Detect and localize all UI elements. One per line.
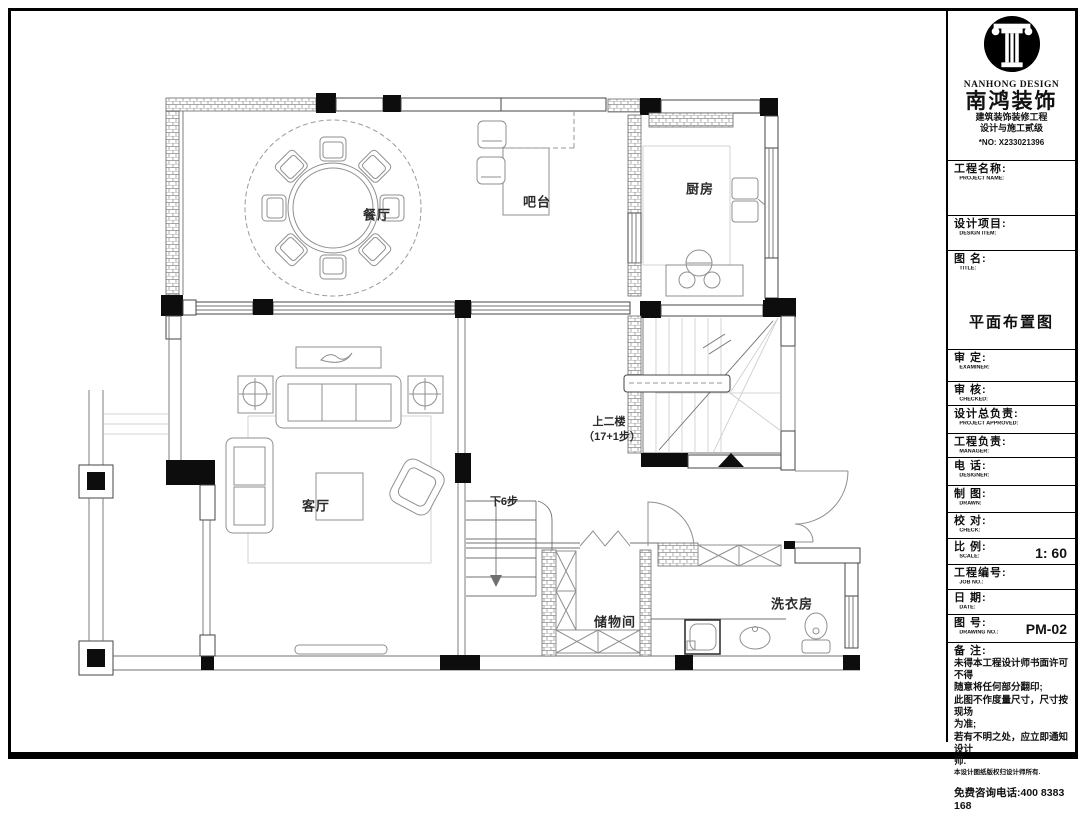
kitchen	[643, 113, 765, 296]
field-checked: 审 核: CHECKED:	[948, 382, 1075, 406]
staircase	[624, 316, 781, 468]
field-project-approved: 设计总负责: PROJECT APPROVED:	[948, 406, 1075, 434]
armchair	[386, 455, 447, 518]
bar-stool	[478, 121, 506, 148]
kitchen-counter	[649, 113, 733, 127]
qualification-line1: 建筑装饰装修工程	[954, 112, 1069, 123]
toilet	[802, 613, 830, 653]
field-designer: 电 话: DESIGNER:	[948, 458, 1075, 486]
dining-room	[245, 120, 421, 296]
company-header: NANHONG DESIGN 南鸿装饰 建筑装饰装修工程 设计与施工贰级 *NO…	[948, 11, 1075, 161]
room-label-dining: 餐厅	[363, 205, 391, 224]
sofa-three-seat	[276, 376, 401, 428]
porch	[79, 390, 169, 641]
entry-door	[795, 471, 848, 542]
floor-plan: 餐厅 吧台 厨房 客厅 储物间 洗衣房 上二楼 （17+1步） 下6步	[11, 11, 948, 742]
certificate-number: *NO: X233021396	[954, 138, 1069, 147]
floor-plan-drawing	[11, 11, 948, 742]
field-examiner: 审 定: EXAMINER:	[948, 350, 1075, 382]
hotline: 免费咨询电话:400 8383 168	[954, 785, 1069, 812]
field-notes: 备 注: 未得本工程设计师书面许可不得 随意将任何部分翻印; 此图不作度量尺寸，…	[948, 643, 1075, 814]
washing-machine	[685, 620, 720, 654]
scale-value: 1: 60	[1035, 545, 1067, 561]
drawing-number-value: PM-02	[1026, 621, 1067, 637]
field-project-name: 工程名称: PROJECT NAME:	[948, 161, 1075, 216]
room-label-living: 客厅	[302, 496, 330, 515]
field-date: 日 期: DATE:	[948, 590, 1075, 615]
room-label-bar: 吧台	[523, 192, 551, 211]
field-check: 校 对: CHECK:	[948, 513, 1075, 539]
annotation-stairs-up-steps: （17+1步）	[583, 428, 641, 444]
side-table	[408, 376, 443, 413]
nanhong-logo-icon	[983, 15, 1041, 73]
annotation-steps-down: 下6步	[490, 493, 518, 509]
brand-name-cn: 南鸿装饰	[954, 90, 1069, 112]
drawing-sheet: 餐厅 吧台 厨房 客厅 储物间 洗衣房 上二楼 （17+1步） 下6步	[8, 8, 1078, 759]
room-label-storage: 储物间	[594, 612, 636, 631]
bar-stool	[477, 157, 505, 184]
kitchen-stove	[666, 250, 743, 296]
field-drawn: 制 图: DRAWN:	[948, 486, 1075, 513]
tv-cabinet	[296, 347, 381, 368]
field-design-item: 设计项目: DESIGN ITEM:	[948, 216, 1075, 251]
field-drawing-no: 图 号: DRAWING NO.: PM-02	[948, 615, 1075, 643]
laundry-sink	[740, 627, 770, 650]
kitchen-sink	[732, 178, 765, 222]
title-block: NANHONG DESIGN 南鸿装饰 建筑装饰装修工程 设计与施工贰级 *NO…	[946, 11, 1075, 742]
laundry-door	[648, 502, 694, 546]
steps-down	[466, 501, 552, 596]
living-room	[226, 347, 448, 654]
field-drawing-title: 图 名: TITLE: 平面布置图	[948, 251, 1075, 350]
side-table	[238, 376, 273, 413]
room-label-kitchen: 厨房	[686, 179, 714, 198]
room-label-laundry: 洗衣房	[771, 594, 813, 613]
laundry-room	[651, 613, 830, 654]
storage-room	[466, 502, 781, 656]
field-job-no: 工程编号: JOB NO.:	[948, 565, 1075, 590]
field-scale: 比 例: SCALE: 1: 60	[948, 539, 1075, 565]
drawing-title-value: 平面布置图	[954, 311, 1069, 332]
window-seat	[295, 645, 387, 654]
qualification-line2: 设计与施工贰级	[954, 123, 1069, 134]
field-manager: 工程负责: MANAGER:	[948, 434, 1075, 458]
annotation-stairs-up: 上二楼	[593, 413, 626, 429]
sofa-two-seat	[226, 438, 273, 533]
